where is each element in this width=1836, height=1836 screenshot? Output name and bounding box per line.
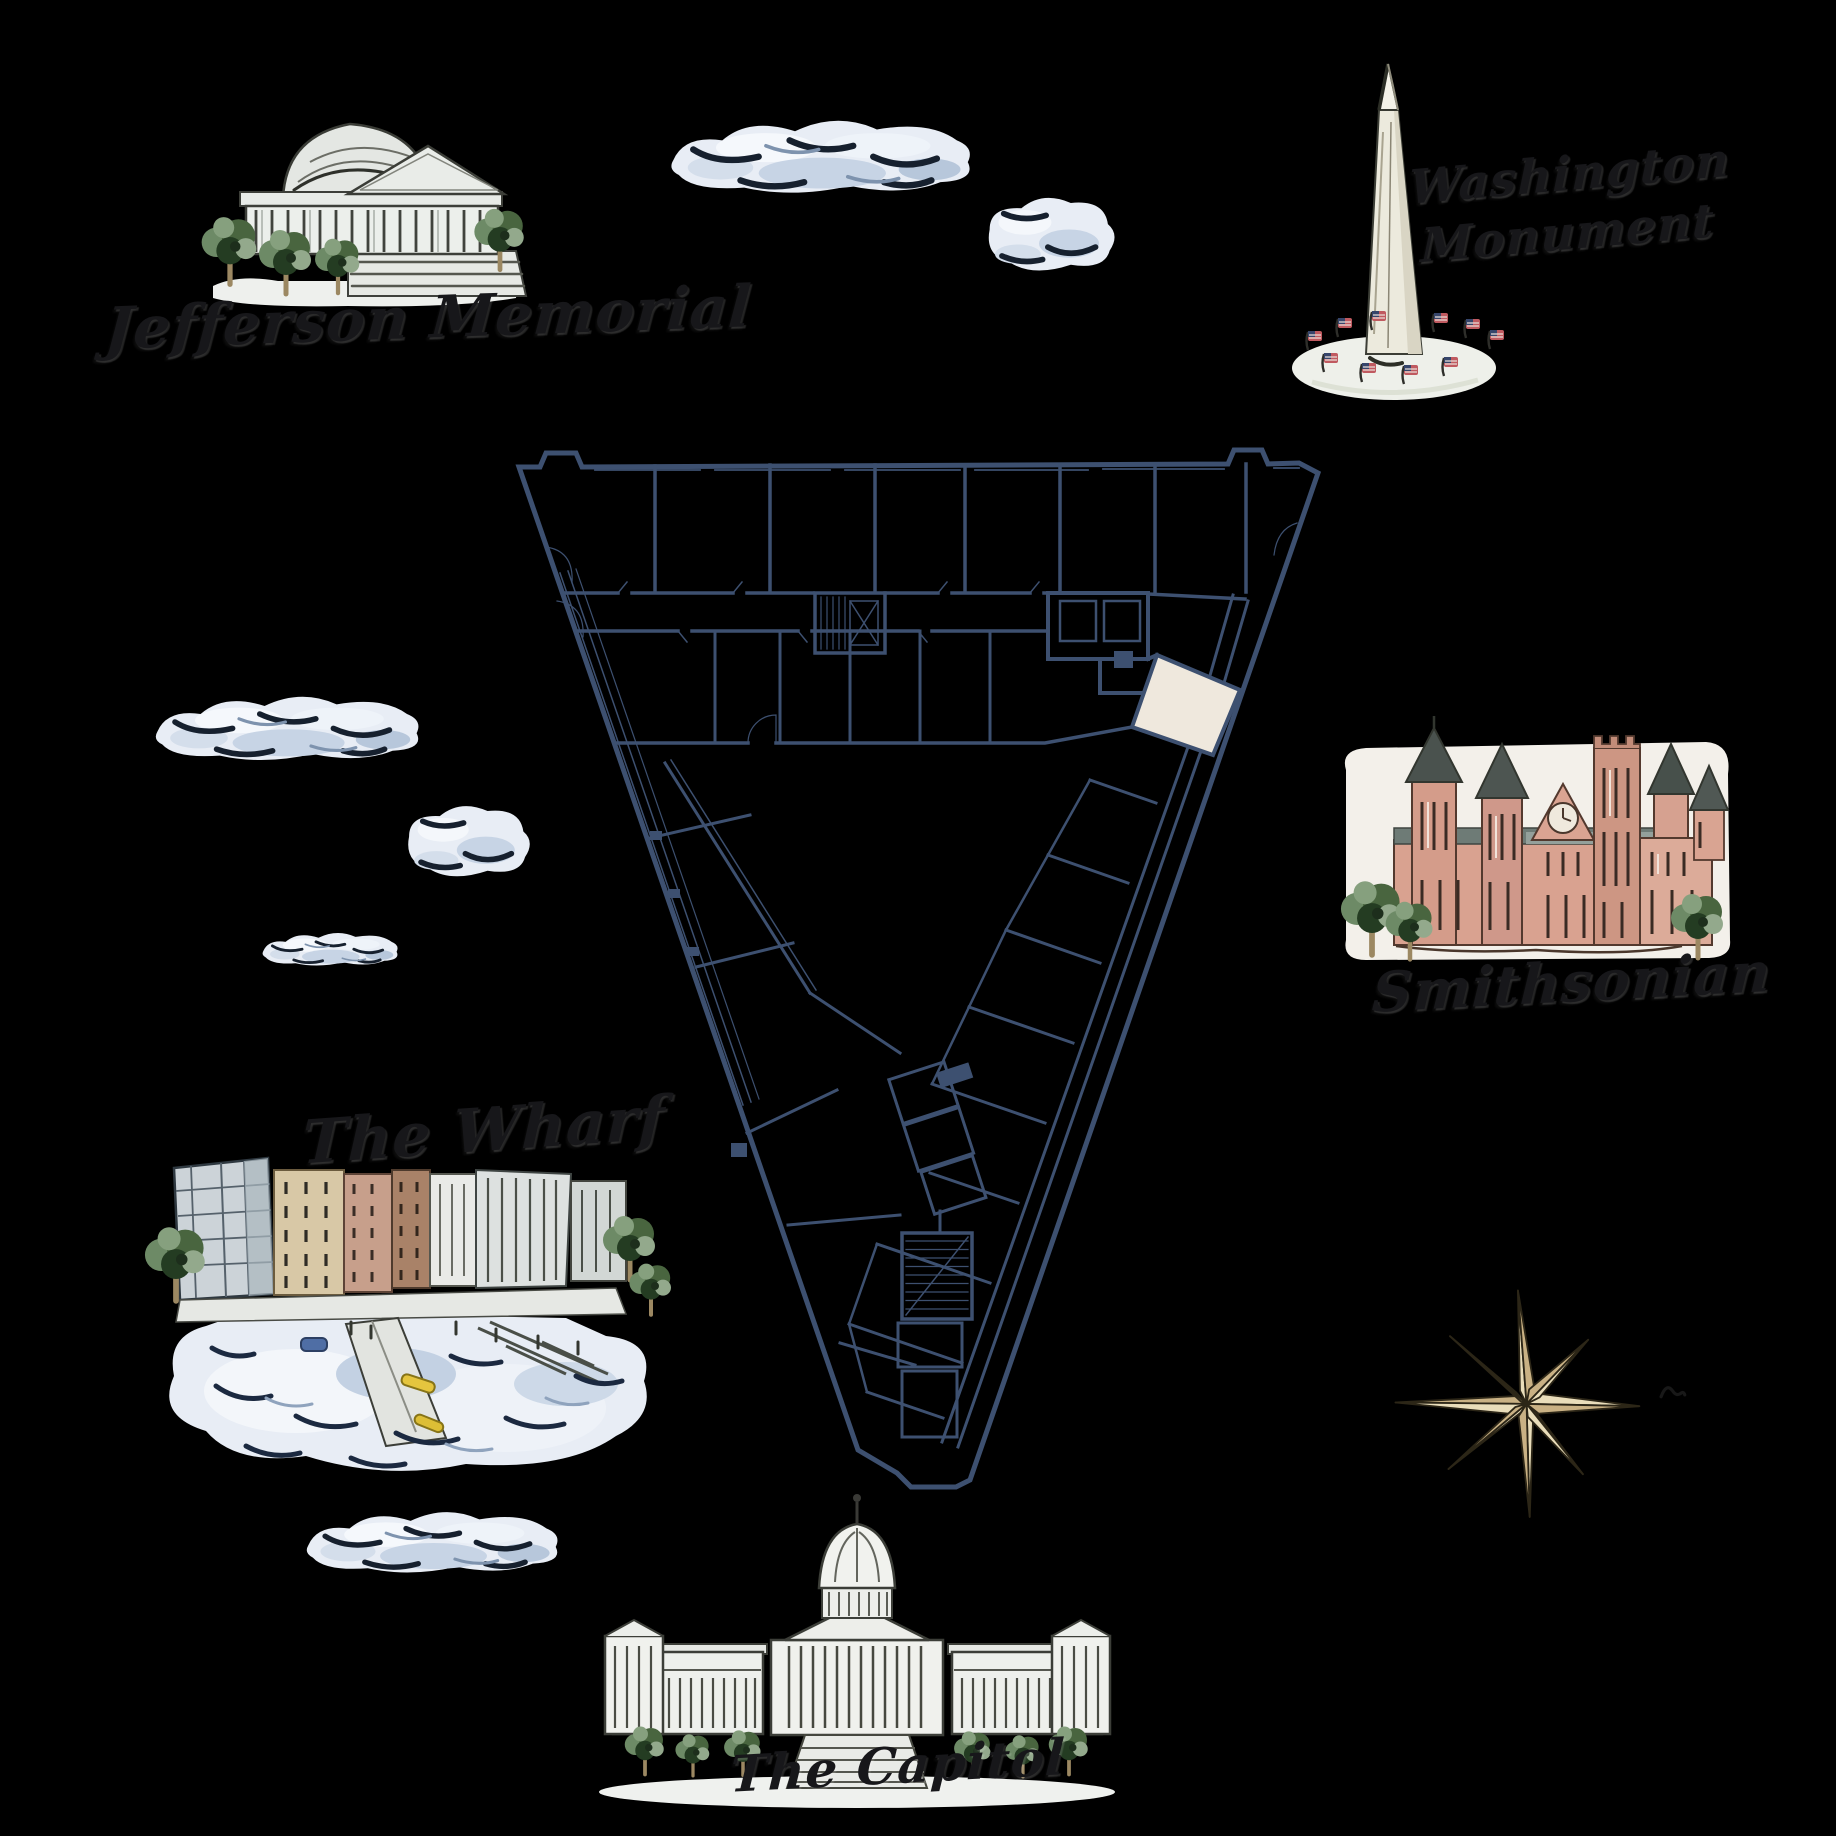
cloud-top-center	[638, 104, 1003, 204]
dc-map-illustration: Jefferson Memorial Washington Monument	[0, 0, 1836, 1836]
compass-rose-icon	[1392, 1282, 1692, 1526]
cloud-top-right	[972, 180, 1122, 286]
cloud-left-large	[138, 682, 436, 770]
cloud-bottom-left	[288, 1498, 576, 1582]
compass-script-mark	[1661, 1388, 1685, 1397]
wharf-illustration	[146, 1086, 671, 1486]
cloud-left-small	[256, 916, 404, 980]
label-jefferson-memorial: Jefferson Memorial	[103, 275, 613, 365]
cloud-left-medium	[392, 786, 537, 894]
smithsonian-illustration	[1336, 690, 1736, 985]
jefferson-memorial-illustration	[198, 86, 528, 311]
